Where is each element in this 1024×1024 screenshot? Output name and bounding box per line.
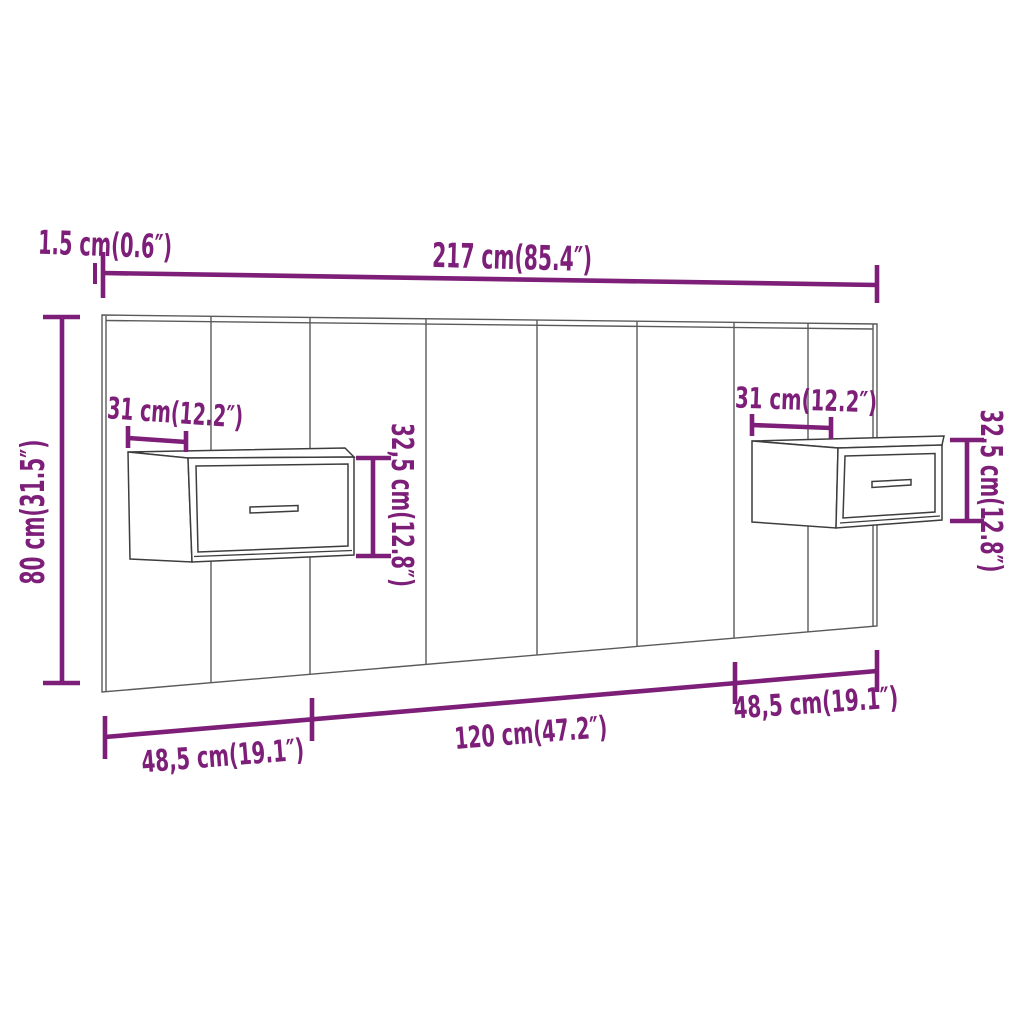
dim-label-thickness: 1.5 cm(0.6″): [37, 223, 172, 267]
dim-label-bottom-left: 48,5 cm(19.1″): [140, 733, 305, 781]
dim-total-height: 80 cm(31.5″): [13, 317, 80, 683]
dim-label-right-cabinet-height: 32,5 cm(12.8″): [973, 410, 1008, 573]
headboard-dimension-diagram: 1.5 cm(0.6″) 217 cm(85.4″) 80 cm(31.5″) …: [0, 0, 1024, 1024]
left-cabinet-drawer-handle: [250, 506, 298, 514]
dim-label-total-height: 80 cm(31.5″): [13, 440, 52, 585]
dimension-diagram-page: 1.5 cm(0.6″) 217 cm(85.4″) 80 cm(31.5″) …: [0, 0, 1024, 1024]
dim-total-width: 1.5 cm(0.6″) 217 cm(85.4″): [37, 223, 877, 303]
dim-label-right-cabinet-width: 31 cm(12.2″): [735, 381, 878, 420]
dim-bottom-segments: 48,5 cm(19.1″) 120 cm(47.2″) 48,5 cm(19.…: [105, 650, 899, 780]
dim-right-cabinet-width-line: [752, 425, 831, 428]
left-cabinet: [128, 448, 354, 562]
dim-label-total-width: 217 cm(85.4″): [432, 236, 593, 280]
left-cabinet-side-face: [128, 452, 192, 562]
dim-left-cabinet-width-line: [128, 438, 186, 442]
dim-label-bottom-right: 48,5 cm(19.1″): [732, 681, 899, 727]
dim-label-bottom-center: 120 cm(47.2″): [453, 710, 608, 757]
right-cabinet-side-face: [752, 441, 838, 528]
headboard-top-edge-inner: [106, 321, 873, 330]
right-cabinet: [752, 436, 944, 528]
dim-label-left-cabinet-height: 32,5 cm(12.8″): [384, 423, 419, 587]
